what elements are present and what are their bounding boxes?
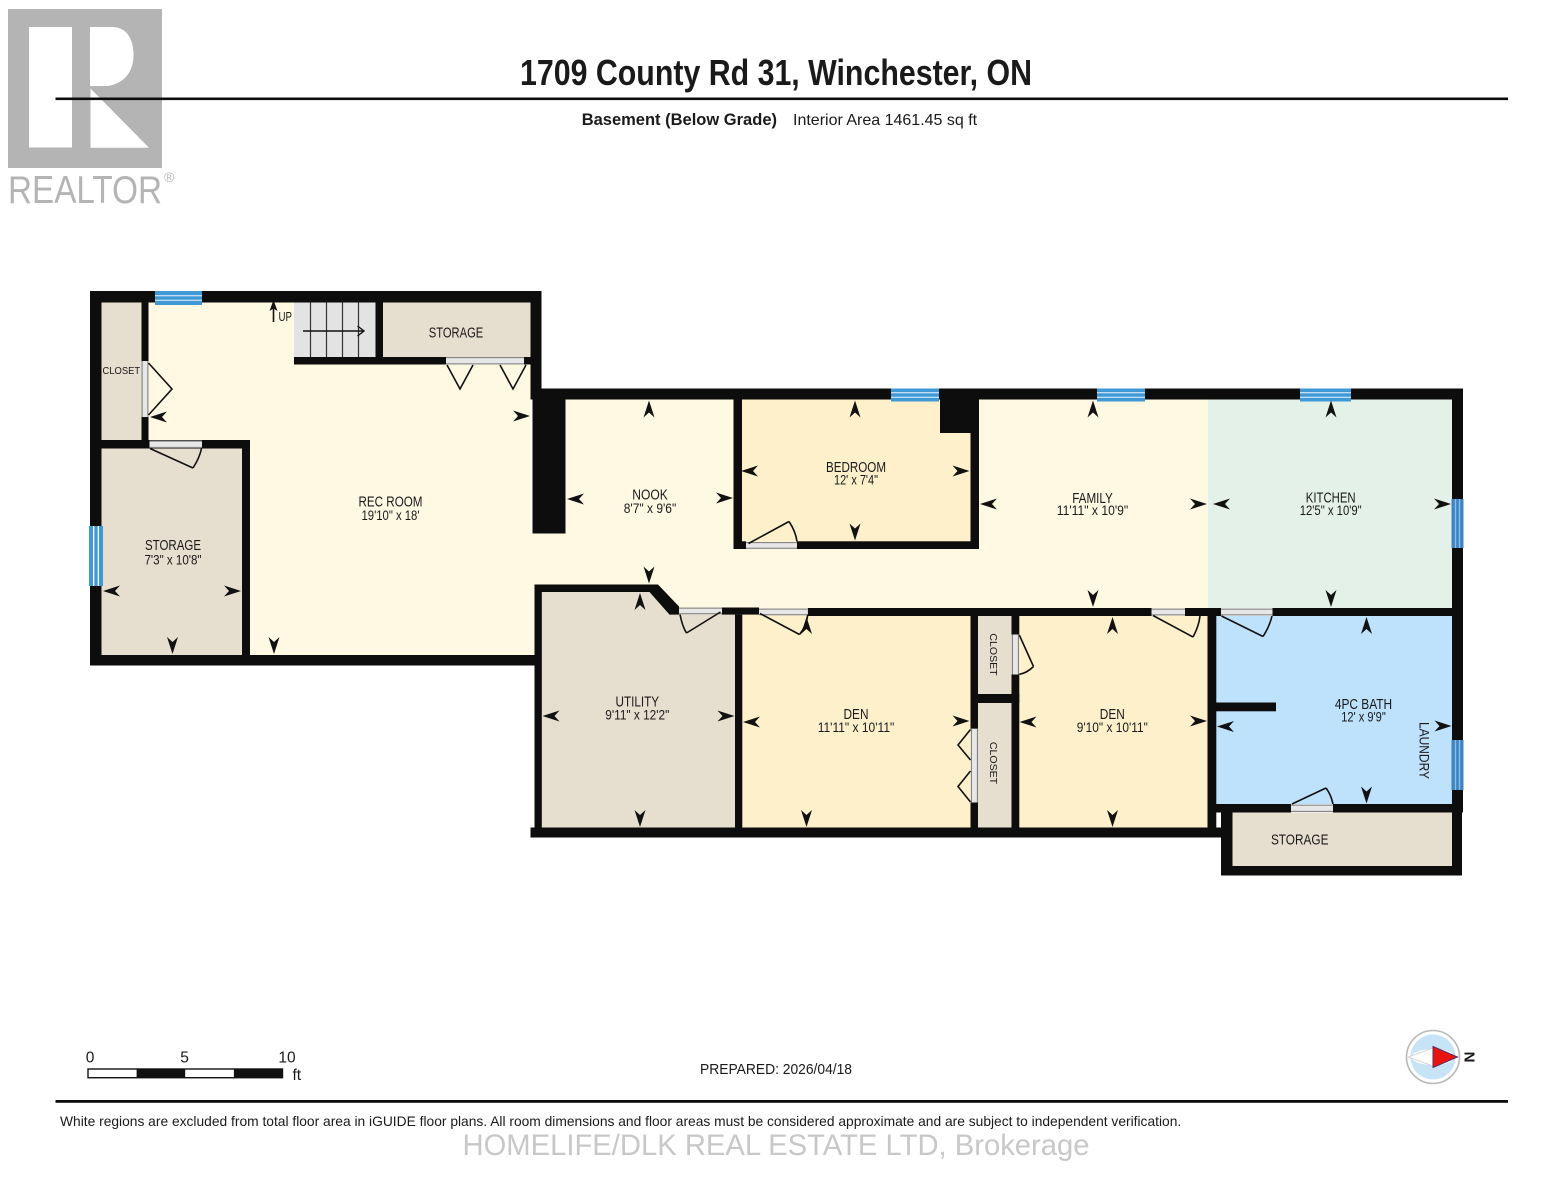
svg-text:®: ® bbox=[164, 169, 175, 185]
svg-text:UP: UP bbox=[279, 310, 293, 324]
svg-text:8'7" x 9'6": 8'7" x 9'6" bbox=[624, 500, 677, 516]
svg-text:12' x 9'9": 12' x 9'9" bbox=[1341, 708, 1386, 724]
svg-text:Basement (Below Grade): Basement (Below Grade) bbox=[582, 111, 777, 129]
svg-text:5: 5 bbox=[180, 1050, 189, 1067]
svg-text:STORAGE: STORAGE bbox=[429, 326, 484, 342]
svg-text:White regions are excluded fro: White regions are excluded from total fl… bbox=[60, 1114, 1181, 1129]
svg-text:CLOSET: CLOSET bbox=[103, 365, 141, 377]
svg-text:9'10" x 10'11": 9'10" x 10'11" bbox=[1077, 719, 1148, 735]
svg-text:LAUNDRY: LAUNDRY bbox=[1417, 722, 1432, 779]
svg-text:12'5" x 10'9": 12'5" x 10'9" bbox=[1300, 502, 1362, 518]
svg-text:Interior Area 1461.45 sq ft: Interior Area 1461.45 sq ft bbox=[793, 112, 978, 129]
svg-text:1709 County Rd 31, Winchester,: 1709 County Rd 31, Winchester, ON bbox=[520, 52, 1032, 93]
svg-text:7'3" x 10'8": 7'3" x 10'8" bbox=[145, 552, 202, 568]
svg-text:REALTOR: REALTOR bbox=[8, 169, 162, 212]
svg-text:STORAGE: STORAGE bbox=[1271, 832, 1329, 848]
svg-text:11'11" x 10'11": 11'11" x 10'11" bbox=[818, 719, 895, 735]
svg-text:N: N bbox=[1461, 1052, 1478, 1063]
svg-text:10: 10 bbox=[278, 1050, 296, 1067]
svg-text:11'11" x 10'9": 11'11" x 10'9" bbox=[1057, 502, 1129, 518]
svg-text:9'11" x 12'2": 9'11" x 12'2" bbox=[605, 707, 669, 723]
svg-text:HOMELIFE/DLK REAL ESTATE LTD,: HOMELIFE/DLK REAL ESTATE LTD, Brokerage bbox=[463, 1129, 1090, 1162]
svg-text:12' x 7'4": 12' x 7'4" bbox=[834, 472, 878, 488]
svg-text:19'10" x 18': 19'10" x 18' bbox=[362, 507, 420, 523]
svg-text:CLOSET: CLOSET bbox=[987, 633, 999, 676]
svg-text:ft: ft bbox=[293, 1067, 302, 1084]
svg-text:0: 0 bbox=[86, 1050, 95, 1067]
svg-text:PREPARED: 2026/04/18: PREPARED: 2026/04/18 bbox=[700, 1061, 852, 1078]
svg-text:CLOSET: CLOSET bbox=[987, 742, 999, 785]
